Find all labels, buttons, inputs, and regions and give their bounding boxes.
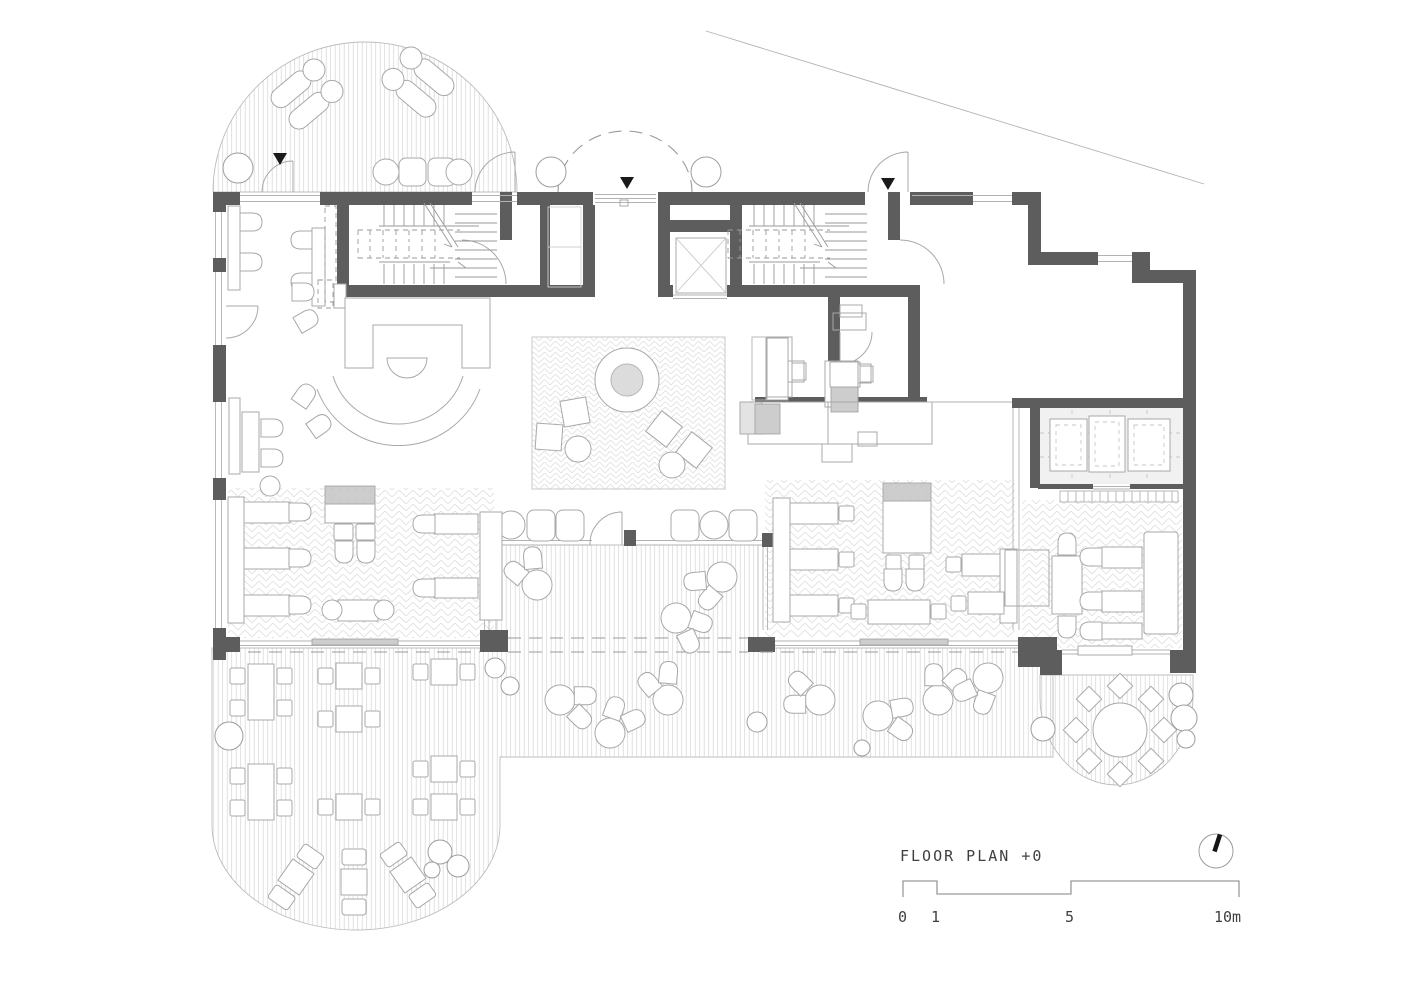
- entrance-triangle-icon: [881, 178, 895, 190]
- site-boundary-line: [706, 31, 1204, 184]
- scale-label-0: 0: [898, 908, 907, 926]
- elevator-x-icon: [676, 238, 726, 293]
- scale-label-10m: 10m: [1214, 908, 1241, 926]
- scale-label-5: 5: [1065, 908, 1074, 926]
- reception-and-service: [740, 305, 1012, 462]
- stair-west: [358, 203, 497, 284]
- reception-desk: [766, 338, 788, 400]
- north-dial-icon: [1199, 834, 1233, 868]
- scale-bar: [903, 881, 1239, 897]
- entrance-triangle-icon: [620, 177, 634, 189]
- floor-plan-title: FLOOR PLAN +0: [900, 847, 1043, 865]
- elevator: [676, 238, 726, 293]
- vestibule-storage: [548, 207, 581, 287]
- stair-east: [728, 203, 867, 284]
- floor-plan-canvas: FLOOR PLAN +0 0 1 5 10m: [0, 0, 1414, 1000]
- scale-label-1: 1: [931, 908, 940, 926]
- annotation: FLOOR PLAN +0 0 1 5 10m: [898, 834, 1241, 926]
